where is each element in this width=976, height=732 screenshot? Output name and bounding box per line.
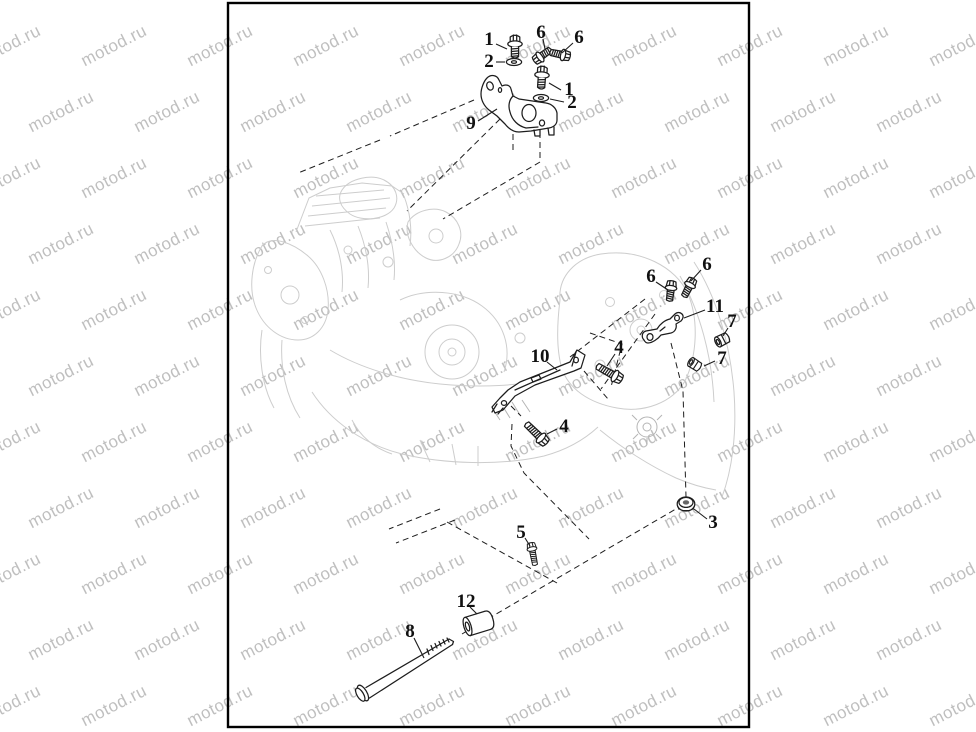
callout-number-1: 1 <box>484 29 494 51</box>
callout-number-2: 2 <box>484 51 494 73</box>
callout-number-8: 8 <box>405 621 415 643</box>
callout-number-6: 6 <box>702 254 712 276</box>
parts-catalog-page: motod.rumotod.rumotod.rumotod.rumotod.ru… <box>0 0 976 732</box>
callout-number-2: 2 <box>567 92 577 114</box>
callout-number-4: 4 <box>559 416 569 438</box>
callout-label-layer: 1662129661177410435128 <box>0 0 976 732</box>
callout-number-7: 7 <box>727 311 737 333</box>
callout-number-10: 10 <box>531 346 550 368</box>
callout-number-9: 9 <box>466 113 476 135</box>
callout-number-5: 5 <box>516 522 526 544</box>
callout-number-11: 11 <box>706 296 724 318</box>
callout-number-6: 6 <box>574 27 584 49</box>
callout-number-7: 7 <box>717 348 727 370</box>
callout-number-4: 4 <box>614 337 624 359</box>
callout-number-6: 6 <box>536 22 546 44</box>
callout-number-12: 12 <box>457 591 476 613</box>
callout-number-3: 3 <box>708 512 718 534</box>
callout-number-6: 6 <box>646 266 656 288</box>
